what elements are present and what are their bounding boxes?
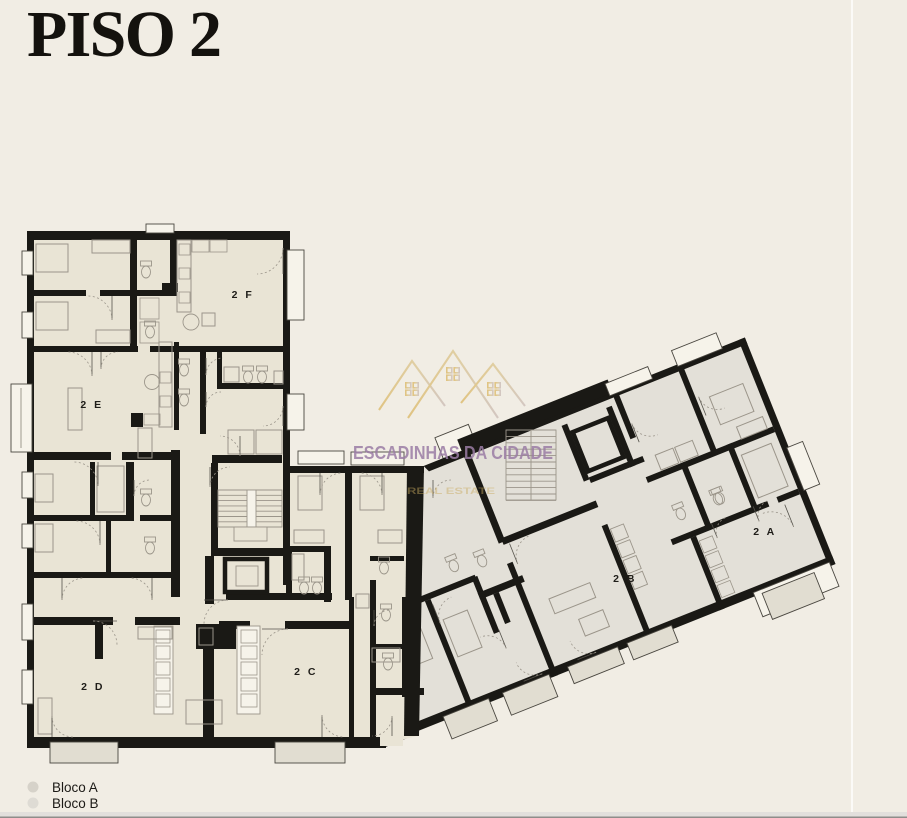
svg-text:PISO 2: PISO 2 [27,0,222,71]
svg-text:2 E: 2 E [80,399,103,411]
svg-text:ESCADINHAS DA CIDADE: ESCADINHAS DA CIDADE [353,443,553,463]
svg-text:2 D: 2 D [81,681,105,693]
svg-text:2 A: 2 A [753,526,776,538]
svg-text:2 F: 2 F [232,289,255,301]
svg-text:REAL ESTATE: REAL ESTATE [407,486,495,497]
svg-text:2 B: 2 B [613,573,637,585]
svg-text:Bloco B: Bloco B [52,796,99,811]
svg-text:2 C: 2 C [294,666,318,678]
svg-text:Bloco A: Bloco A [52,780,98,795]
